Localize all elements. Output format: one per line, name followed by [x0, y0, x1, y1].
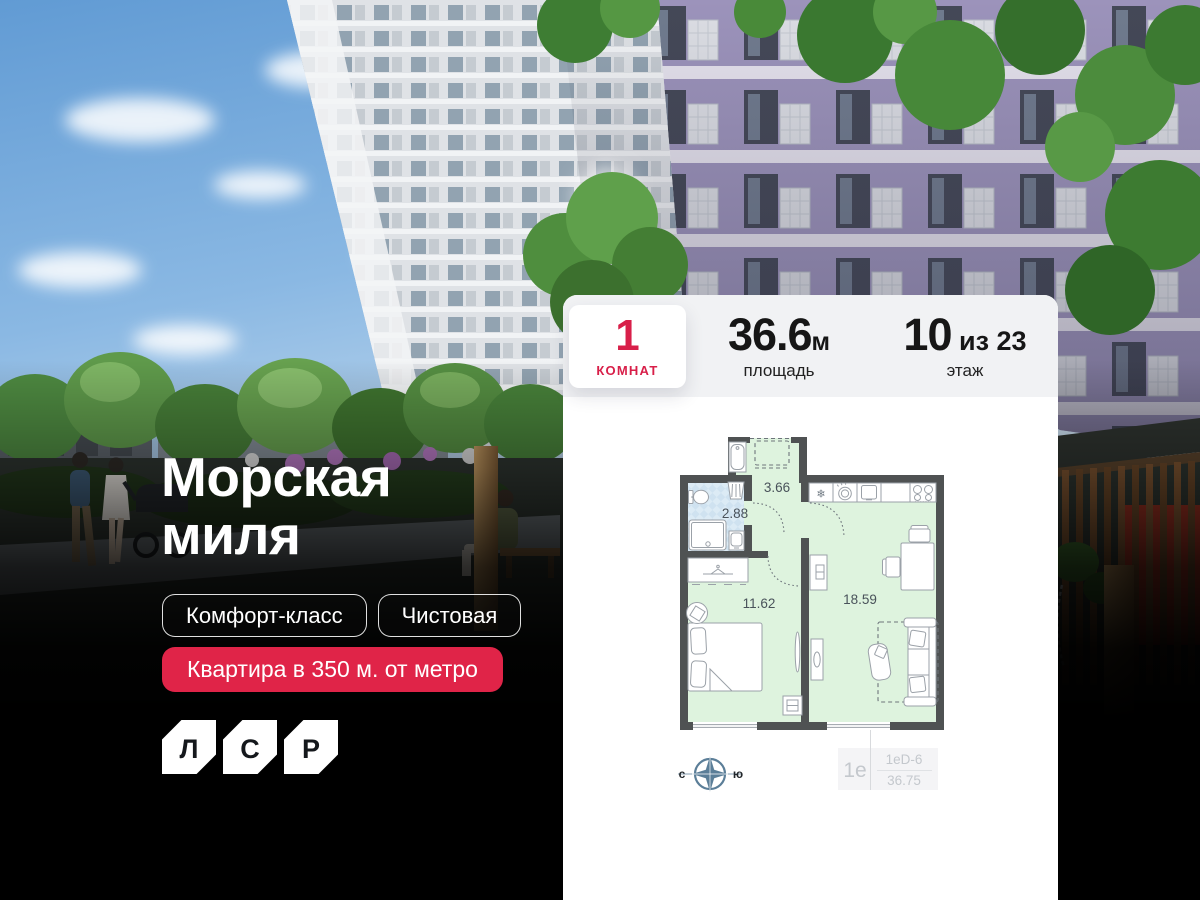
- logo-cell-r: Р: [284, 720, 338, 774]
- unit-type: 1е: [843, 759, 866, 782]
- plan-area-label-living: 18.59: [843, 592, 877, 607]
- title-line-2: миля: [161, 507, 391, 565]
- area-unit: м: [812, 328, 831, 356]
- closet-with-hanger-icon: [688, 558, 748, 585]
- tag-finishing: Чистовая: [378, 594, 522, 637]
- floor-label: этаж: [872, 361, 1058, 381]
- toilet-icon: [689, 490, 709, 504]
- area-stat: 36.6м площадь: [686, 312, 872, 381]
- laundry-basket-icon: [728, 482, 744, 499]
- logo-cell-l: Л: [162, 720, 216, 774]
- plant-icon: [687, 603, 708, 624]
- logo-cell-s: С: [223, 720, 277, 774]
- tv-console-icon: [811, 639, 823, 680]
- area-value: 36.6: [728, 309, 812, 360]
- nightstand-icon: [783, 696, 802, 715]
- apartment-info-card[interactable]: 1 КОМНАТ 36.6м площадь 10 из 23 этаж: [563, 295, 1058, 900]
- floor-stat: 10 из 23 этаж: [872, 312, 1058, 381]
- rooms-card: 1 КОМНАТ: [569, 305, 686, 388]
- page-title: Морская миля: [161, 449, 391, 565]
- shower-tray-icon: [689, 520, 726, 550]
- floor-value: 10: [903, 309, 951, 360]
- tag-list: Комфорт-класс Чистовая: [162, 594, 521, 637]
- bathtub-icon: [729, 442, 746, 472]
- rooms-label: КОМНАТ: [596, 363, 658, 378]
- rooms-value: 1: [615, 314, 639, 358]
- stats-bar: 1 КОМНАТ 36.6м площадь 10 из 23 этаж: [563, 295, 1058, 397]
- unit-layout-code: 1еD-6: [886, 752, 923, 767]
- badge-label: Квартира в 350 м. от метро: [187, 656, 478, 683]
- plan-area-label-hall: 3.66: [764, 480, 790, 495]
- plan-area-label-bathroom: 2.88: [722, 506, 748, 521]
- fridge-icon: ❄: [816, 489, 825, 501]
- compass-north-label: с: [679, 767, 686, 781]
- tag-comfort-class: Комфорт-класс: [162, 594, 367, 637]
- tag-label: Чистовая: [402, 603, 498, 629]
- plan-area-label-bedroom: 11.62: [743, 596, 776, 611]
- kitchen-island-icon: [810, 555, 827, 590]
- area-label: площадь: [686, 361, 872, 381]
- title-line-1: Морская: [161, 449, 391, 507]
- washbasin-icon: [729, 531, 744, 550]
- floor-of-total: из 23: [951, 326, 1026, 356]
- tag-label: Комфорт-класс: [186, 603, 343, 629]
- lsr-logo[interactable]: Л С Р: [162, 720, 338, 774]
- bed-icon: [688, 623, 762, 691]
- mirror-icon: [795, 632, 800, 672]
- compass-south-label: ю: [733, 767, 743, 781]
- metro-distance-badge: Квартира в 350 м. от метро: [162, 647, 503, 692]
- unit-total-area: 36.75: [887, 773, 921, 788]
- floor-plan: ❄: [670, 425, 960, 800]
